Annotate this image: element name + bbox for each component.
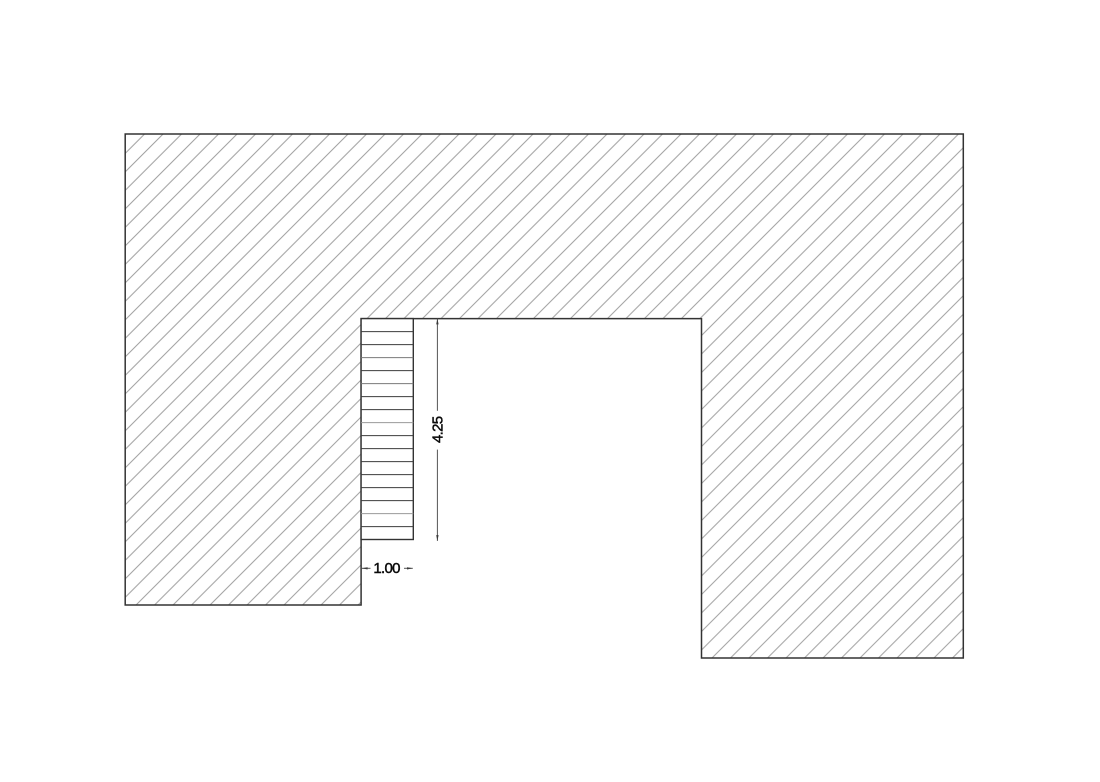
svg-text:4.25: 4.25 [429, 416, 446, 443]
svg-text:1.00: 1.00 [373, 560, 400, 577]
